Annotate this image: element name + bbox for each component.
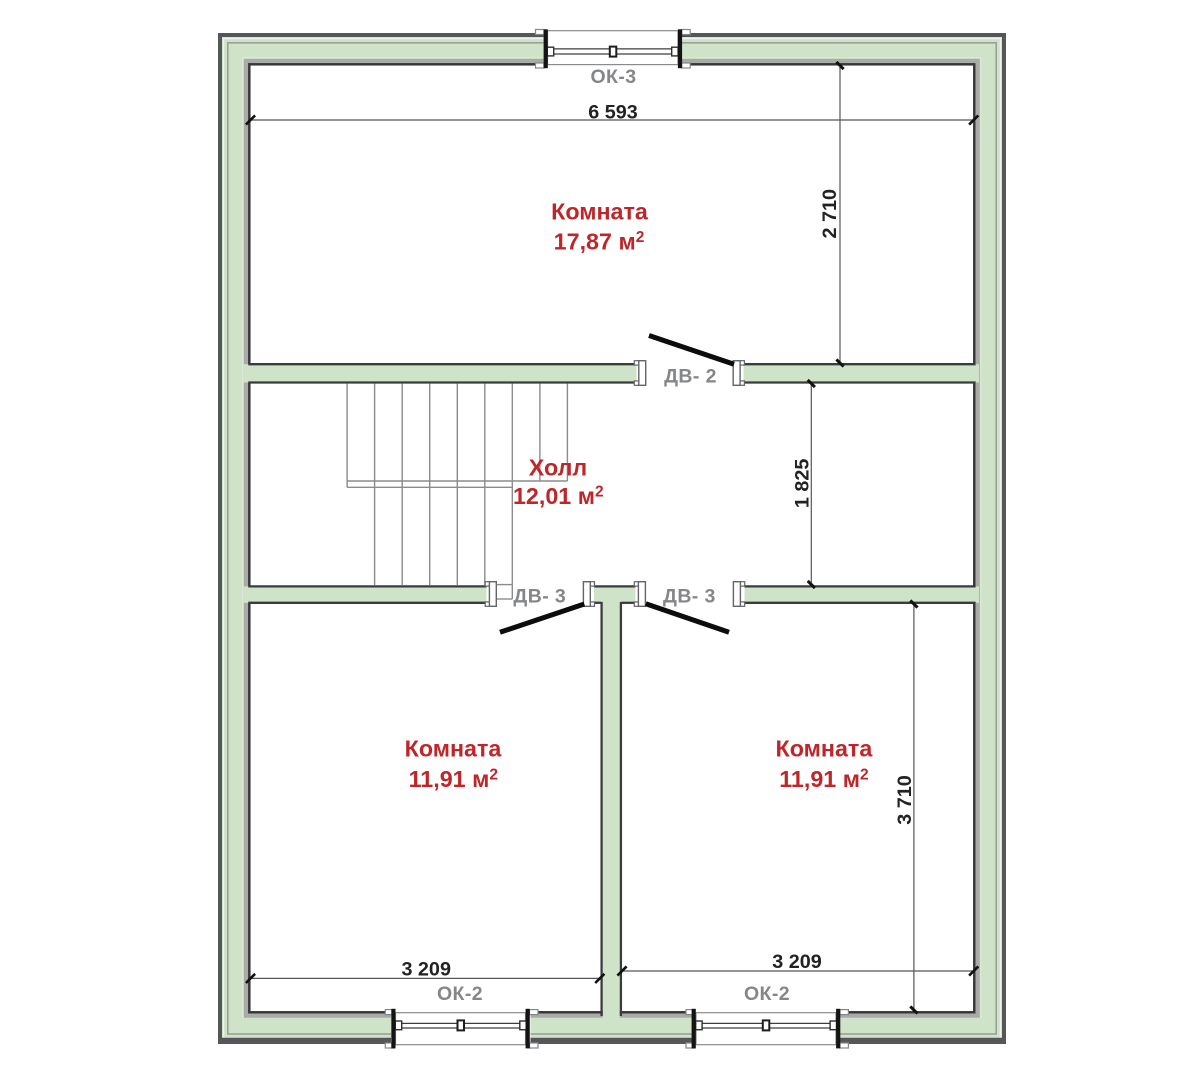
svg-text:3 710: 3 710	[894, 775, 916, 825]
svg-text:ОК-2: ОК-2	[744, 983, 790, 1005]
svg-text:11,91 м2: 11,91 м2	[779, 766, 868, 792]
svg-text:11,91 м2: 11,91 м2	[409, 766, 498, 792]
svg-text:12,01 м2: 12,01 м2	[513, 483, 604, 509]
svg-text:Холл: Холл	[529, 455, 587, 481]
svg-text:3 209: 3 209	[772, 951, 822, 973]
svg-text:2 710: 2 710	[819, 189, 841, 239]
svg-text:17,87 м2: 17,87 м2	[554, 229, 645, 255]
svg-text:ДВ- 3: ДВ- 3	[513, 585, 566, 607]
svg-text:Комната: Комната	[551, 198, 649, 224]
svg-text:ДВ- 3: ДВ- 3	[663, 585, 716, 607]
svg-text:ОК-2: ОК-2	[437, 983, 483, 1005]
svg-text:Комната: Комната	[776, 736, 874, 762]
svg-text:Комната: Комната	[405, 736, 503, 762]
svg-text:ДВ- 2: ДВ- 2	[664, 366, 717, 388]
svg-text:3 209: 3 209	[401, 959, 451, 981]
svg-text:6 593: 6 593	[588, 101, 638, 123]
svg-text:ОК-3: ОК-3	[590, 66, 636, 88]
svg-text:1 825: 1 825	[792, 459, 814, 509]
